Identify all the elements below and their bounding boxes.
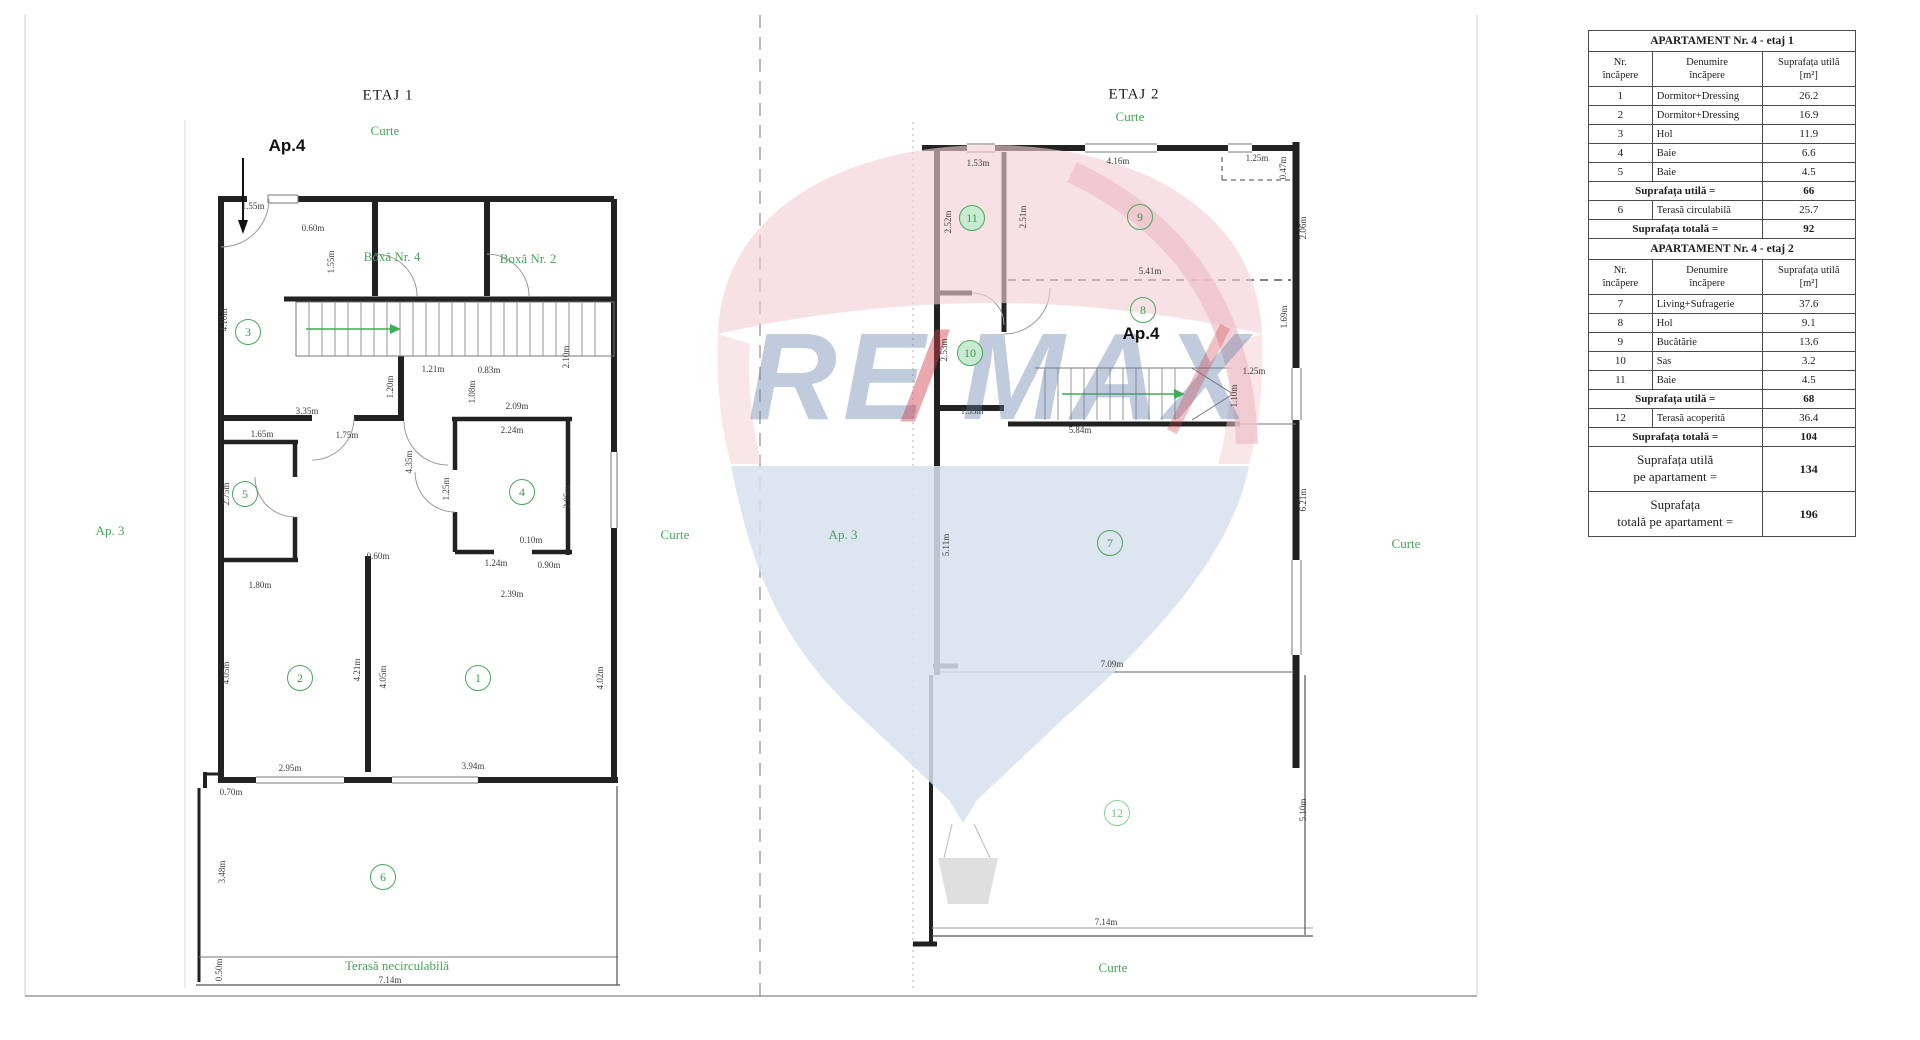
dimension-label: 1.65m: [251, 429, 274, 439]
dimension-label: 0.83m: [478, 365, 501, 375]
dimension-label: 7.14m: [379, 975, 402, 985]
dimension-label: 1.69m: [1279, 306, 1289, 329]
area-label: Boxă Nr. 4: [364, 249, 421, 265]
dimension-label: 2.95m: [279, 763, 302, 773]
dimension-label: 0.60m: [302, 223, 325, 233]
room-number: 5: [232, 481, 258, 507]
dimension-label: 2.53m: [939, 339, 949, 362]
table-row: 1Dormitor+Dressing26.2: [1589, 87, 1856, 106]
dimension-label: 5.10m: [1298, 799, 1308, 822]
dimension-label: 3.94m: [462, 761, 485, 771]
table-section-title: APARTAMENT Nr. 4 - etaj 2: [1589, 239, 1856, 260]
dimension-label: 2.05m: [562, 486, 572, 509]
dimension-label: 2.10m: [561, 346, 571, 369]
dimension-label: 0.70m: [220, 787, 243, 797]
area-label: Terasă necirculabilă: [345, 958, 449, 974]
dimension-label: 1.08m: [467, 381, 477, 404]
area-label: Boxă Nr. 2: [500, 251, 557, 267]
table-section-title: APARTAMENT Nr. 4 - etaj 1: [1589, 31, 1856, 52]
dimension-label: 1.20m: [385, 376, 395, 399]
dimension-label: 1.80m: [249, 580, 272, 590]
dimension-label: 2.75m: [221, 483, 231, 506]
room-number: 7: [1097, 530, 1123, 556]
room-number: 6: [370, 864, 396, 890]
room-number: 11: [959, 205, 985, 231]
dimension-label: 2.24m: [501, 425, 524, 435]
area-label: Ap. 3: [829, 527, 858, 543]
area-summary-table: APARTAMENT Nr. 4 - etaj 1Nr. încăpereDen…: [1588, 30, 1856, 537]
table-row: 4Baie6.6: [1589, 144, 1856, 163]
dimension-label: 2.52m: [943, 211, 953, 234]
table-row: 7Living+Sufragerie37.6: [1589, 295, 1856, 314]
table-row: Suprafața totală pe apartament =196: [1589, 492, 1856, 537]
dimension-label: 1.75m: [336, 430, 359, 440]
dimension-label: 2.39m: [501, 589, 524, 599]
dimension-label: 3.35m: [296, 406, 319, 416]
area-label: Curte: [1099, 960, 1128, 976]
room-number: 8: [1130, 297, 1156, 323]
dimension-label: 6.21m: [1298, 489, 1308, 512]
area-label: Curte: [371, 123, 400, 139]
dimension-label: 1.24m: [485, 558, 508, 568]
table-row: 5Baie4.5: [1589, 163, 1856, 182]
table-row: 11Baie4.5: [1589, 371, 1856, 390]
area-label: Curte: [1392, 536, 1421, 552]
dimension-label: 4.21m: [352, 659, 362, 682]
dimension-label: 1.55m: [242, 201, 265, 211]
table-row: Nr. încăpereDenumire încăpereSuprafața u…: [1589, 260, 1856, 295]
area-label: Curte: [1116, 109, 1145, 125]
floorplan-document: RE / MAX ETAJ 1 Ap.4 ETAJ 2 Ap.4 CurteBo…: [0, 0, 1920, 1040]
dimension-label: 0.90m: [538, 560, 561, 570]
dimension-label: 4.05m: [378, 666, 388, 689]
area-label: Curte: [661, 527, 690, 543]
room-number: 2: [287, 665, 313, 691]
table-row: Suprafața utilă =66: [1589, 182, 1856, 201]
dimension-label: 1.55m: [326, 251, 336, 274]
dimension-label: 0.10m: [520, 535, 543, 545]
table-row: 3Hol11.9: [1589, 125, 1856, 144]
room-number: 12: [1104, 800, 1130, 826]
room-number: 10: [957, 340, 983, 366]
dimension-label: 7.14m: [1095, 917, 1118, 927]
etaj1-apartment-label: Ap.4: [269, 136, 306, 156]
table-row: APARTAMENT Nr. 4 - etaj 2: [1589, 239, 1856, 260]
room-number: 1: [465, 665, 491, 691]
dimension-label: 2.09m: [506, 401, 529, 411]
dimension-label: 0.47m: [1278, 157, 1288, 180]
dimension-label: 1.53m: [967, 158, 990, 168]
etaj2-apartment-label: Ap.4: [1123, 324, 1160, 344]
table-row: Suprafața utilă =68: [1589, 390, 1856, 409]
dimension-label: 7.09m: [1101, 659, 1124, 669]
dimension-label: 5.84m: [1069, 425, 1092, 435]
dimension-label: 0.50m: [214, 959, 224, 982]
table-row: Nr. încăpereDenumire încăpereSuprafața u…: [1589, 52, 1856, 87]
room-number: 9: [1127, 204, 1153, 230]
dimension-label: 1.53m: [961, 406, 984, 416]
dimension-label: 4.05m: [221, 662, 231, 685]
dimension-label: 2.51m: [1018, 206, 1028, 229]
dimension-label: 1.25m: [1243, 366, 1266, 376]
dimension-label: 3.48m: [217, 861, 227, 884]
dimension-label: 2.06m: [1298, 217, 1308, 240]
table-row: 12Terasă acoperită36.4: [1589, 409, 1856, 428]
dimension-label: 1.25m: [1246, 153, 1269, 163]
area-label: Ap. 3: [96, 523, 125, 539]
table-row: 2Dormitor+Dressing16.9: [1589, 106, 1856, 125]
dimension-label: 4.02m: [595, 667, 605, 690]
room-number: 3: [235, 319, 261, 345]
dimension-label: 1.21m: [422, 364, 445, 374]
table-row: 6Terasă circulabilă25.7: [1589, 201, 1856, 220]
table-row: Suprafața totală =104: [1589, 428, 1856, 447]
dimension-label: 4.10m: [219, 309, 229, 332]
dimension-label: 1.10m: [1229, 385, 1239, 408]
table-row: Suprafața totală =92: [1589, 220, 1856, 239]
dimension-label: 5.41m: [1139, 266, 1162, 276]
etaj2-title: ETAJ 2: [1108, 87, 1159, 104]
dimension-label: 5.11m: [941, 534, 951, 556]
etaj1-title: ETAJ 1: [362, 88, 413, 105]
table-row: 9Bucătărie13.6: [1589, 333, 1856, 352]
room-number: 4: [509, 479, 535, 505]
table-row: 8Hol9.1: [1589, 314, 1856, 333]
dimension-label: 4.16m: [1107, 156, 1130, 166]
dimension-label: 1.25m: [441, 478, 451, 501]
table-row: 10Sas3.2: [1589, 352, 1856, 371]
dimension-label: 4.35m: [404, 451, 414, 474]
table-row: Suprafața utilă pe apartament =134: [1589, 447, 1856, 492]
table-row: APARTAMENT Nr. 4 - etaj 1: [1589, 31, 1856, 52]
dimension-label: 0.60m: [367, 551, 390, 561]
